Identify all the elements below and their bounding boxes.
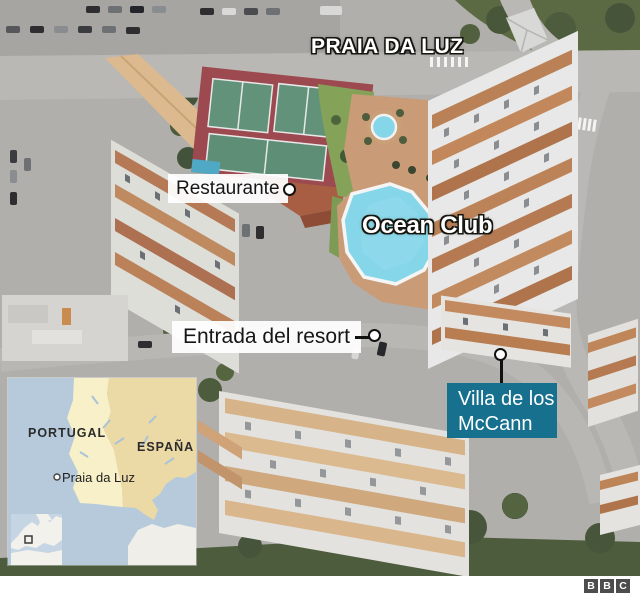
bbc-logo-block-1: B	[584, 579, 598, 593]
villa-label-line1: Villa de los	[458, 387, 557, 412]
locator-inset-map: PORTUGAL ESPAÑA Praia da Luz	[8, 378, 196, 565]
footer: B B C	[0, 576, 640, 600]
bbc-logo-block-3: C	[616, 579, 630, 593]
villa-label: Villa de los McCann	[447, 383, 557, 438]
restaurant-marker	[283, 183, 296, 196]
flat-roof-building	[2, 295, 128, 361]
entrance-label: Entrada del resort	[172, 321, 361, 353]
bbc-logo-block-2: B	[600, 579, 614, 593]
inset-town-label: Praia da Luz	[62, 470, 135, 485]
espana-label: ESPAÑA	[137, 439, 194, 454]
town-marker	[54, 474, 60, 480]
europe-minimap	[11, 514, 62, 565]
villa-label-line2: McCann	[458, 412, 557, 437]
town-title: PRAIA DA LUZ	[311, 35, 464, 59]
news-map-graphic: PRAIA DA LUZ Restaurante Ocean Club Entr…	[0, 0, 640, 600]
small-pool	[362, 109, 407, 145]
parking-lot	[0, 0, 340, 58]
resort-name-label: Ocean Club	[362, 212, 492, 240]
portugal-label: PORTUGAL	[28, 426, 106, 440]
restaurant-label: Restaurante	[168, 174, 288, 203]
entrance-marker	[368, 329, 381, 342]
africa-landmass	[128, 524, 196, 565]
villa-connector-line	[500, 360, 503, 384]
entrance-connector-line	[355, 336, 369, 339]
